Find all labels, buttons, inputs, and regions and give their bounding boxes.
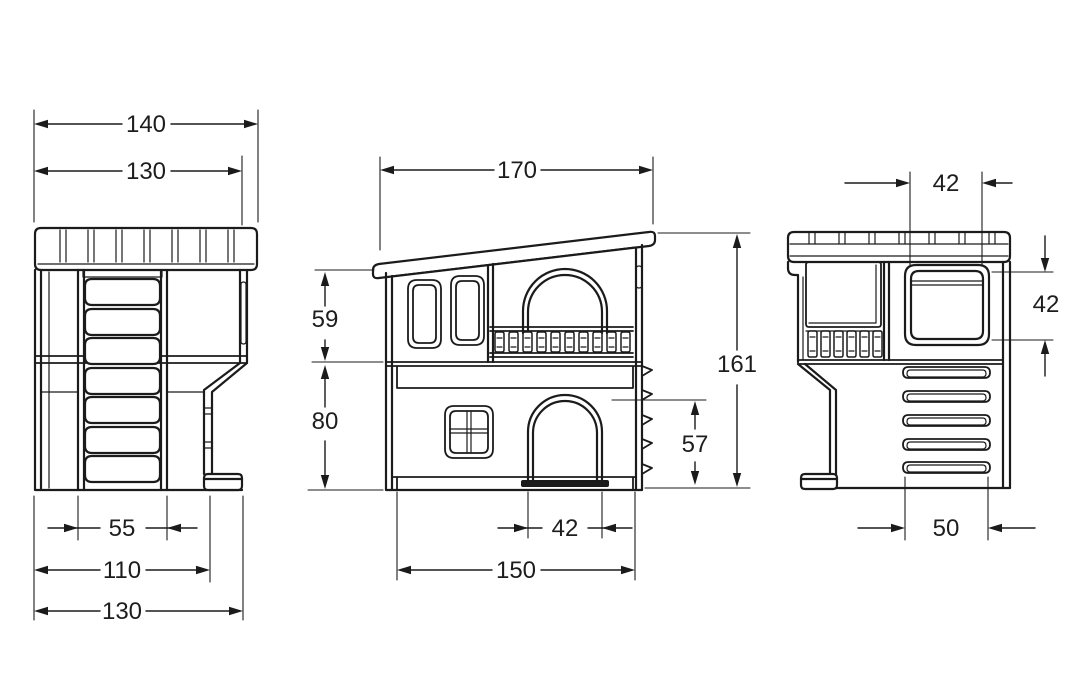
arrowhead [64,524,78,532]
dim-front-door-width: 42 [552,515,579,542]
dim-side-window-height: 42 [1033,291,1060,318]
dim-left-base-inner: 110 [103,557,141,584]
arrowhead [397,566,411,574]
left-ladder-rungs [85,279,160,482]
dim-side-window-width: 42 [933,170,960,197]
arrowhead [228,167,242,175]
front-upper-windows [408,276,484,348]
front-balcony-arch [523,269,607,333]
side-balcony-inner [806,265,881,331]
left-view [35,228,257,490]
front-railing-balusters [495,332,630,352]
side-body-outline [788,262,1010,488]
arrowhead [891,524,905,532]
left-wall-slot [241,282,246,344]
arrowhead [167,524,181,532]
arrowhead [982,179,996,187]
front-lower-window [445,406,493,458]
arrowhead [321,475,329,489]
arrowhead [380,166,394,174]
front-view [373,232,655,490]
arrowhead [34,566,48,574]
arrowhead [733,234,741,248]
arrowhead [896,179,910,187]
left-foot [204,474,242,490]
three-view-drawing: 140 130 55 110 130 [0,0,1080,699]
side-floor-lines [798,360,1003,364]
dim-front-total-height: 161 [717,351,757,378]
side-window-sash [911,281,983,285]
dim-front-base-width: 150 [496,557,536,584]
side-railing-balusters [808,331,882,357]
arrowhead [1041,258,1049,272]
arrowhead [691,401,699,415]
arrowhead [244,120,258,128]
arrowhead [321,347,329,361]
arrowhead [229,607,243,615]
arrowhead [514,524,528,532]
side-view [788,232,1010,489]
arrowhead [988,524,1002,532]
front-right-hooks [642,366,652,474]
arrowhead [34,607,48,615]
front-window-mullions [450,411,488,453]
dim-left-top-inner: 130 [126,158,166,185]
front-door-arch [528,395,602,481]
front-wall-divider [488,264,493,362]
dim-front-lower-height: 80 [312,408,339,435]
dim-front-door-height: 57 [682,431,709,458]
arrowhead [34,167,48,175]
side-vent-inner-lines [907,370,986,472]
arrowhead [34,120,48,128]
technical-drawing-canvas: 140 130 55 110 130 [0,0,1080,699]
side-extension-lines [905,172,1053,540]
dim-front-upper-height: 59 [312,306,339,333]
side-wall-divider [884,262,889,360]
side-vent-slots [903,367,990,473]
dim-side-vent-width: 50 [933,515,960,542]
dim-left-base-outer: 130 [102,598,142,625]
arrowhead [321,272,329,286]
dim-left-top-outer: 140 [126,111,166,138]
dim-front-roof-width: 170 [497,157,537,184]
front-view-dimensions: 170 59 80 161 57 42 150 [308,157,757,584]
side-foot [801,474,837,489]
front-roof [373,232,655,278]
arrowhead [196,566,210,574]
front-door-threshold [521,480,609,487]
front-body-outline [386,245,642,490]
arrowhead [639,166,653,174]
side-lower-step [798,364,836,474]
arrowhead [621,566,635,574]
front-floor-slab [386,362,642,388]
dim-left-ladder-width: 55 [109,515,136,542]
arrowhead [321,365,329,379]
arrowhead [733,473,741,487]
arrowhead [602,524,616,532]
arrowhead [691,471,699,485]
side-balcony-opening [806,262,881,327]
arrowhead [1041,340,1049,354]
side-square-window [905,265,989,345]
front-extension-lines [308,157,750,580]
